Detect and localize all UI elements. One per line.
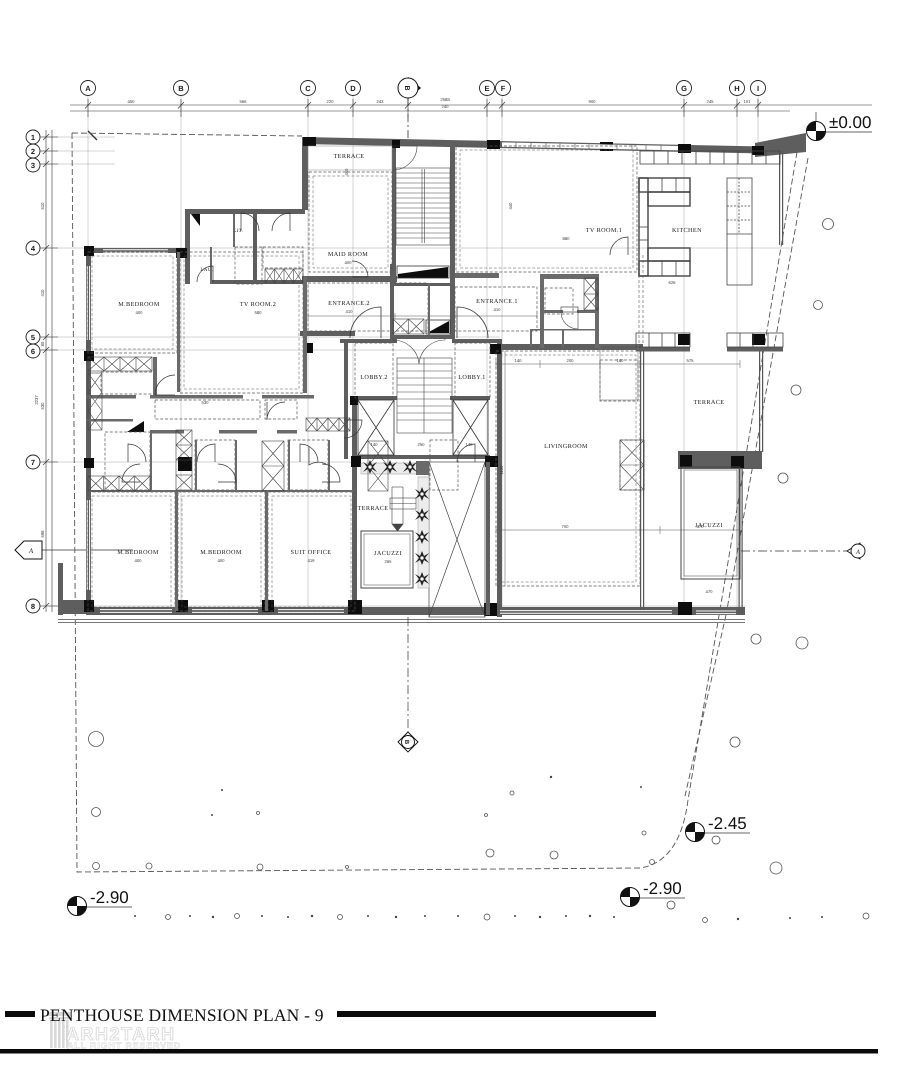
svg-text:B: B	[403, 85, 410, 90]
svg-text:2588: 2588	[440, 97, 450, 102]
svg-text:A: A	[28, 547, 34, 555]
svg-text:419: 419	[308, 558, 316, 563]
svg-text:TV ROOM.1: TV ROOM.1	[586, 227, 623, 234]
svg-text:575: 575	[687, 358, 695, 363]
svg-text:140: 140	[371, 442, 379, 447]
svg-text:6: 6	[31, 347, 35, 356]
svg-text:E: E	[484, 84, 489, 93]
svg-text:880: 880	[563, 236, 571, 241]
svg-text:ENTRANCE.1: ENTRANCE.1	[476, 298, 518, 305]
svg-text:626: 626	[669, 280, 677, 285]
svg-text:LIVINGROOM: LIVINGROOM	[544, 443, 588, 450]
svg-text:566: 566	[240, 99, 248, 104]
svg-text:B: B	[178, 84, 184, 93]
svg-text:245: 245	[707, 99, 715, 104]
svg-text:1: 1	[31, 133, 35, 142]
svg-text:101: 101	[744, 99, 752, 104]
svg-text:530: 530	[40, 402, 45, 410]
svg-text:TERRACE: TERRACE	[358, 505, 389, 512]
svg-text:C: C	[305, 84, 311, 93]
svg-text:580: 580	[255, 310, 263, 315]
svg-text:470: 470	[697, 524, 705, 529]
svg-text:±0.00: ±0.00	[829, 113, 871, 132]
svg-text:MAID ROOM: MAID ROOM	[328, 251, 368, 258]
svg-text:1120: 1120	[499, 465, 504, 475]
svg-text:SUIT OFFICE: SUIT OFFICE	[291, 549, 332, 556]
svg-text:400: 400	[135, 558, 143, 563]
svg-text:410: 410	[346, 309, 354, 314]
svg-text:PENTHOUSE DIMENSION PLAN - 9: PENTHOUSE DIMENSION PLAN - 9	[40, 1005, 324, 1025]
svg-text:243: 243	[377, 99, 385, 104]
svg-text:M.BEDROOM: M.BEDROOM	[117, 549, 159, 556]
svg-text:A: A	[85, 84, 91, 93]
svg-text:-2.90: -2.90	[643, 879, 682, 898]
svg-text:8: 8	[31, 602, 35, 611]
svg-text:140: 140	[617, 358, 625, 363]
svg-text:410: 410	[494, 307, 502, 312]
svg-text:TV ROOM.2: TV ROOM.2	[240, 301, 277, 308]
svg-text:265: 265	[385, 559, 393, 564]
svg-text:-2.45: -2.45	[708, 814, 747, 833]
svg-text:LOBBY.2: LOBBY.2	[360, 374, 388, 381]
svg-text:KITCHEN: KITCHEN	[672, 227, 702, 234]
svg-text:250: 250	[418, 442, 426, 447]
svg-text:410: 410	[40, 289, 45, 297]
svg-text:TERRACE: TERRACE	[334, 153, 365, 160]
svg-text:M.BEDROOM: M.BEDROOM	[118, 301, 160, 308]
svg-text:440: 440	[508, 202, 513, 210]
svg-text:TERRACE: TERRACE	[694, 399, 725, 406]
svg-text:B: B	[403, 740, 410, 745]
svg-text:2: 2	[31, 147, 35, 156]
svg-text:7: 7	[31, 458, 35, 467]
svg-text:700: 700	[562, 524, 570, 529]
svg-text:400: 400	[218, 558, 226, 563]
svg-text:900: 900	[589, 99, 597, 104]
svg-text:400: 400	[136, 310, 144, 315]
svg-text:698: 698	[40, 530, 45, 538]
svg-text:ENTRANCE.2: ENTRANCE.2	[328, 300, 370, 307]
svg-text:400: 400	[345, 260, 353, 265]
svg-text:470: 470	[706, 589, 714, 594]
svg-text:510: 510	[40, 202, 45, 210]
svg-text:5: 5	[31, 333, 35, 342]
svg-text:LOBBY.1: LOBBY.1	[458, 374, 486, 381]
svg-text:460: 460	[344, 168, 349, 176]
svg-text:H: H	[734, 84, 739, 93]
svg-text:2237: 2237	[34, 395, 39, 405]
svg-text:I: I	[757, 84, 759, 93]
svg-text:JACUZZI: JACUZZI	[374, 550, 402, 557]
svg-text:220: 220	[327, 99, 335, 104]
svg-text:240: 240	[442, 104, 450, 109]
svg-text:A: A	[855, 549, 860, 556]
svg-text:M.BEDROOM: M.BEDROOM	[200, 549, 242, 556]
svg-text:140: 140	[515, 358, 523, 363]
svg-text:200: 200	[567, 358, 575, 363]
svg-text:F: F	[501, 84, 506, 93]
svg-text:G: G	[681, 84, 687, 93]
svg-text:140: 140	[466, 442, 474, 447]
svg-text:450: 450	[128, 99, 136, 104]
svg-text:80: 80	[40, 341, 45, 346]
svg-text:3: 3	[31, 161, 35, 170]
svg-text:530: 530	[202, 400, 210, 405]
svg-text:D: D	[350, 84, 356, 93]
svg-text:-2.90: -2.90	[90, 888, 129, 907]
